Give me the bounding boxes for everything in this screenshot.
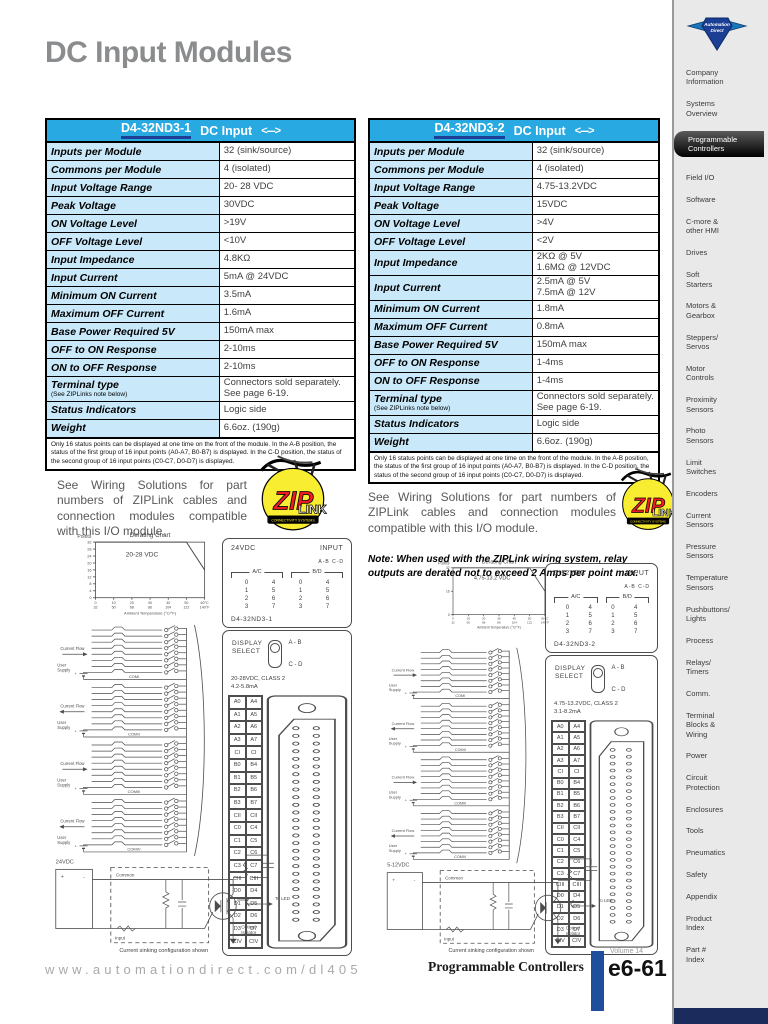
svg-text:4.75-13.2 VDC: 4.75-13.2 VDC <box>474 576 511 582</box>
sidebar-item[interactable]: Enclosures <box>686 805 764 814</box>
terminal-cell: B6 <box>246 784 263 797</box>
svg-text:60°C: 60°C <box>201 601 209 605</box>
terminal-cell: D7 <box>569 924 586 935</box>
svg-text:50: 50 <box>467 621 471 625</box>
terminal-cell: C7 <box>246 860 263 873</box>
spec-row: ON Voltage Level>4V <box>369 215 659 233</box>
footer-section-label: Programmable Controllers <box>428 959 584 975</box>
svg-text:Ambient Temperature (°C/°F): Ambient Temperature (°C/°F) <box>477 626 521 630</box>
ab-cd-label: A-B C-D <box>624 584 650 590</box>
sidebar-item[interactable]: Circuit Protection <box>686 773 764 792</box>
sidebar-item[interactable]: Product Index <box>686 914 764 933</box>
terminal-cell: C0 <box>552 834 569 845</box>
terminal-cell: A0 <box>229 696 246 709</box>
spec-table-d4-32nd3-1: D4-32ND3-1 DC Input <---> Inputs per Mod… <box>45 118 356 471</box>
input-wiring-schematic: COMICurrent FlowUserSupply+COMIICurrent … <box>53 622 225 860</box>
terminal-cell: B5 <box>246 772 263 785</box>
svg-text:32: 32 <box>446 566 450 570</box>
svg-text:32: 32 <box>451 621 455 625</box>
ab-cd-label: A-B C-D <box>318 559 344 565</box>
spec-row: Status IndicatorsLogic side <box>369 415 659 433</box>
terminal-cell: C0 <box>229 822 246 835</box>
logo-banner-text: CONNECTIVITY SYSTEMS <box>630 520 666 524</box>
sidebar-nav: Company InformationSystems OverviewProgr… <box>674 68 768 964</box>
module-face-d4-32nd3-1: 24VDC INPUT A-B C-D A/C B/D 040415152626… <box>222 538 352 956</box>
display-select-toggle[interactable] <box>268 640 282 668</box>
terminal-cell: D2 <box>552 913 569 924</box>
terminal-cell: A5 <box>246 709 263 722</box>
part-number-link[interactable]: D4-32ND3-2 <box>434 122 504 138</box>
terminal-label-grid: A0A4A1A5A2A6A3A7CICIB0B4B1B5B2B6B3B7CIIC… <box>228 695 263 949</box>
svg-text:24: 24 <box>87 554 92 558</box>
spec-row: Input Voltage Range20- 28 VDC <box>46 179 355 197</box>
svg-text:COMI: COMI <box>455 694 465 698</box>
svg-text:122: 122 <box>527 621 532 625</box>
svg-text:68: 68 <box>130 605 134 609</box>
svg-text:Current Flow: Current Flow <box>60 704 85 709</box>
sidebar-item[interactable]: Systems Overview <box>686 99 764 118</box>
terminal-cell: A3 <box>229 734 246 747</box>
module-top-section: 5-12VDC INPUT A-B C-D A/C B/D 0404151526… <box>545 563 658 653</box>
position-cd-label: C - D <box>611 687 625 693</box>
spec-row: Terminal type(See ZIPLinks note below)Co… <box>46 377 355 402</box>
terminal-cell: CIII <box>246 872 263 885</box>
svg-text:Current Flow: Current Flow <box>392 775 415 780</box>
svg-text:Points: Points <box>438 560 450 565</box>
terminal-cell: C4 <box>569 834 586 845</box>
connector-socket <box>266 695 348 949</box>
sidebar-bottom-bar <box>674 1008 768 1024</box>
svg-text:4: 4 <box>89 589 92 593</box>
terminal-cell: A7 <box>569 755 586 766</box>
sidebar-item[interactable]: Motor Controls <box>686 364 764 383</box>
svg-text:COMIII: COMIII <box>128 789 141 794</box>
spec-row: ON to OFF Response2-10ms <box>46 359 355 377</box>
svg-text:20-28 VDC: 20-28 VDC <box>126 551 159 558</box>
sidebar-item[interactable]: Proximity Sensors <box>686 395 764 414</box>
terminal-cell: C3 <box>229 860 246 873</box>
terminal-cell: CII <box>229 809 246 822</box>
svg-text:0: 0 <box>94 601 96 605</box>
sidebar-item[interactable]: Motors & Gearbox <box>686 301 764 320</box>
svg-text:+: + <box>74 843 77 848</box>
svg-text:Supply: Supply <box>57 667 71 672</box>
footer-volume-label: Volume 14 <box>610 948 643 955</box>
spec-row: Peak Voltage15VDC <box>369 197 659 215</box>
terminal-cell: CI <box>246 746 263 759</box>
svg-text:+: + <box>74 786 77 791</box>
svg-text:Supply: Supply <box>57 840 71 845</box>
terminal-cell: B3 <box>229 797 246 810</box>
terminal-cell: C3 <box>552 868 569 879</box>
terminal-cell: CI <box>229 746 246 759</box>
part-number-link[interactable]: D4-32ND3-1 <box>121 122 191 138</box>
spec-row: Base Power Required 5V150mA max <box>46 323 355 341</box>
module-part-number: D4-32ND3-1 <box>231 616 273 623</box>
svg-text:+: + <box>74 671 77 676</box>
sidebar-item[interactable]: Encoders <box>686 489 764 498</box>
terminal-cell: C7 <box>569 868 586 879</box>
group-bracket: B/D <box>606 597 650 603</box>
terminal-cell: C1 <box>229 835 246 848</box>
spec-row: Commons per Module4 (isolated) <box>369 161 659 179</box>
terminal-cell: C1 <box>552 845 569 856</box>
terminal-cell: C2 <box>552 857 569 868</box>
terminal-cell: D6 <box>246 910 263 923</box>
terminal-cell: D1 <box>229 898 246 911</box>
sidebar-item[interactable]: Power <box>686 751 764 760</box>
module-class-label: 20-28VDC, CLASS 2 <box>231 676 285 682</box>
svg-text:50: 50 <box>112 605 116 609</box>
terminal-cell: A3 <box>552 755 569 766</box>
terminal-cell: B7 <box>246 797 263 810</box>
svg-text:Current Flow: Current Flow <box>60 819 85 824</box>
spec-row: Commons per Module4 (isolated) <box>46 161 355 179</box>
terminal-cell: CIII <box>569 879 586 890</box>
terminal-cell: B2 <box>229 784 246 797</box>
sidebar-item[interactable]: Process <box>686 636 764 645</box>
terminal-cell: CII <box>246 809 263 822</box>
terminal-cell: C4 <box>246 822 263 835</box>
spec-row: Peak Voltage30VDC <box>46 197 355 215</box>
terminal-cell: C6 <box>569 857 586 868</box>
terminal-cell: A7 <box>246 734 263 747</box>
position-ab-label: A - B <box>288 640 302 646</box>
terminal-cell: CI <box>569 766 586 777</box>
module-voltage-label: 5-12VDC <box>554 570 586 577</box>
catalog-sidebar: Automation Direct Company InformationSys… <box>672 0 768 1024</box>
terminal-cell: B7 <box>569 811 586 822</box>
spec-row: OFF to ON Response1-4ms <box>369 354 659 372</box>
terminal-cell: B0 <box>229 759 246 772</box>
svg-text:+: + <box>61 875 64 881</box>
terminal-cell: A2 <box>229 721 246 734</box>
spec-row: Terminal type(See ZIPLinks note below)Co… <box>369 390 659 415</box>
ziplink-paragraph: See Wiring Solutions for part numbers of… <box>368 490 616 536</box>
footer-accent-bar <box>591 951 604 1011</box>
module-input-label: INPUT <box>320 545 343 552</box>
terminal-cell: CII <box>569 823 586 834</box>
terminal-cell: CIII <box>229 872 246 885</box>
svg-text:8: 8 <box>89 582 91 586</box>
terminal-cell: CIV <box>246 935 263 948</box>
spec-row: Minimum ON Current3.5mA <box>46 287 355 305</box>
terminal-cell: A2 <box>552 744 569 755</box>
svg-text:Supply: Supply <box>389 794 401 799</box>
svg-text:COMII: COMII <box>455 748 466 752</box>
spec-row: OFF Voltage Level<10V <box>46 233 355 251</box>
sidebar-item[interactable]: Drives <box>686 248 764 257</box>
toggle-knob <box>270 643 280 653</box>
svg-text:Derating Chart: Derating Chart <box>130 532 171 539</box>
sidebar-item[interactable]: C-more & other HMI <box>686 217 764 236</box>
sidebar-item[interactable]: Field I/O <box>686 173 764 182</box>
svg-text:Input: Input <box>444 936 455 941</box>
terminal-cell: C5 <box>569 845 586 856</box>
terminal-cell: B4 <box>569 778 586 789</box>
svg-text:Common: Common <box>445 875 463 880</box>
svg-text:Current Flow: Current Flow <box>60 646 85 651</box>
sidebar-item[interactable]: Tools <box>686 826 764 835</box>
terminal-cell: D5 <box>246 898 263 911</box>
spec-row: Input Impedance4.8KΩ <box>46 251 355 269</box>
spec-row: Input Impedance2KΩ @ 5V1.6MΩ @ 12VDC <box>369 251 659 276</box>
svg-text:24VDC: 24VDC <box>56 859 74 865</box>
spec-row: Status IndicatorsLogic side <box>46 401 355 419</box>
sidebar-item[interactable]: Safety <box>686 870 764 879</box>
svg-text:Supply: Supply <box>57 782 71 787</box>
sidebar-item[interactable]: Company Information <box>686 68 764 87</box>
svg-text:Derating Chart: Derating Chart <box>482 560 517 566</box>
sidebar-item[interactable]: Temperature Sensors <box>686 573 764 592</box>
svg-text:Input: Input <box>115 936 126 941</box>
terminal-cell: A1 <box>552 732 569 743</box>
svg-text:Points: Points <box>77 534 92 540</box>
spec-row: Maximum OFF Current1.6mA <box>46 305 355 323</box>
terminal-cell: D2 <box>229 910 246 923</box>
page-title: DC Input Modules <box>45 36 292 70</box>
terminal-cell: C2 <box>229 847 246 860</box>
svg-text:Common: Common <box>116 873 135 878</box>
sidebar-item[interactable]: Pushbuttons/ Lights <box>686 605 764 624</box>
svg-text:5-12VDC: 5-12VDC <box>387 863 409 869</box>
svg-text:+: + <box>392 878 395 883</box>
spec-row: Inputs per Module32 (sink/source) <box>46 142 355 161</box>
module-body-section: DISPLAY SELECT A - B C - D 4.75-13.2VDC,… <box>545 655 658 955</box>
svg-text:86: 86 <box>148 605 152 609</box>
spec-rows-table: Inputs per Module32 (sink/source)Commons… <box>45 141 356 439</box>
spec-row: Weight6.6oz. (190g) <box>369 433 659 452</box>
terminal-cell: D4 <box>246 885 263 898</box>
display-select-label: DISPLAY SELECT <box>232 640 262 668</box>
svg-text:0: 0 <box>448 613 450 617</box>
svg-text:10: 10 <box>112 601 116 605</box>
terminal-cell: CII <box>552 823 569 834</box>
table-type-label: DC Input <box>514 124 566 138</box>
terminal-cell: D1 <box>552 902 569 913</box>
spec-row: Input Current2.5mA @ 5V7.5mA @ 12V <box>369 275 659 300</box>
svg-text:0: 0 <box>89 596 91 600</box>
terminal-label-grid: A0A4A1A5A2A6A3A7CICIB0B4B1B5B2B6B3B7CIIC… <box>551 720 586 948</box>
terminal-cell: B3 <box>552 811 569 822</box>
terminal-cell: D3 <box>552 924 569 935</box>
svg-text:+: + <box>405 691 407 695</box>
svg-text:Direct: Direct <box>710 28 723 33</box>
connector-socket <box>589 720 654 948</box>
sidebar-item[interactable]: Soft Starters <box>686 270 764 289</box>
table-type-label: DC Input <box>200 124 252 138</box>
sidebar-item[interactable]: Steppers/ Servos <box>686 333 764 352</box>
terminal-cell: CIV <box>552 936 569 947</box>
terminal-cell: B4 <box>246 759 263 772</box>
terminal-cell: B1 <box>229 772 246 785</box>
svg-text:122: 122 <box>183 605 189 609</box>
terminal-cell: D7 <box>246 923 263 936</box>
terminal-cell: B5 <box>569 789 586 800</box>
terminal-cell: CIII <box>552 879 569 890</box>
sidebar-item[interactable]: Relays/ Timers <box>686 658 764 677</box>
spec-row: ON to OFF Response1-4ms <box>369 372 659 390</box>
module-part-number: D4-32ND3-2 <box>554 641 596 648</box>
sidebar-item[interactable]: Pressure Sensors <box>686 542 764 561</box>
terminal-cell: D3 <box>229 923 246 936</box>
terminal-cell: D0 <box>229 885 246 898</box>
sidebar-item[interactable]: Programmable Controllers <box>674 131 764 158</box>
svg-text:+: + <box>405 745 407 749</box>
svg-text:40: 40 <box>166 601 170 605</box>
svg-text:50: 50 <box>184 601 188 605</box>
svg-text:COMIII: COMIII <box>454 801 466 805</box>
terminal-cell: D5 <box>569 902 586 913</box>
svg-text:Current Flow: Current Flow <box>392 828 415 833</box>
display-select-toggle[interactable] <box>591 665 605 693</box>
point-number-grid: 0404151526263737 <box>556 605 647 635</box>
module-class-label: 4.75-13.2VDC, CLASS 2 <box>554 701 618 707</box>
terminal-cell: A0 <box>552 721 569 732</box>
svg-text:32: 32 <box>87 541 91 545</box>
terminal-cell: B1 <box>552 789 569 800</box>
svg-text:16: 16 <box>446 589 450 593</box>
terminal-cell: CIV <box>229 935 246 948</box>
link-logo-text: LINK <box>298 502 327 516</box>
spec-table-header: D4-32ND3-1 DC Input <---> <box>45 118 356 141</box>
sidebar-item[interactable]: Software <box>686 195 764 204</box>
svg-text:Ambient Temperature (°C/°F): Ambient Temperature (°C/°F) <box>124 610 177 615</box>
svg-text:16: 16 <box>87 568 91 572</box>
svg-text:Current Flow: Current Flow <box>60 761 85 766</box>
position-ab-label: A - B <box>611 665 625 671</box>
footer-url-link[interactable]: www.automationdirect.com/dl405 <box>45 962 362 977</box>
toggle-knob <box>593 668 603 678</box>
position-cd-label: C - D <box>288 662 302 668</box>
svg-text:Current Flow: Current Flow <box>392 721 415 726</box>
spec-row: OFF to ON Response2-10ms <box>46 341 355 359</box>
display-select-label: DISPLAY SELECT <box>555 665 585 693</box>
catalog-page: DC Input Modules D4-32ND3-1 DC Input <--… <box>0 0 768 1024</box>
module-face-d4-32nd3-2: 5-12VDC INPUT A-B C-D A/C B/D 0404151526… <box>545 563 658 955</box>
sidebar-item[interactable]: Appendix <box>686 892 764 901</box>
spec-row: Minimum ON Current1.8mA <box>369 300 659 318</box>
sidebar-item[interactable]: Pneumatics <box>686 848 764 857</box>
spec-row: Maximum OFF Current0.8mA <box>369 318 659 336</box>
spec-row: Input Current5mA @ 24VDC <box>46 269 355 287</box>
svg-text:68: 68 <box>482 621 486 625</box>
svg-text:Current sinking configuration: Current sinking configuration shown <box>119 948 208 954</box>
spec-row: Inputs per Module32 (sink/source) <box>369 142 659 161</box>
svg-text:30: 30 <box>148 601 152 605</box>
footer-page-number: e6-61 <box>608 955 667 982</box>
terminal-cell: D0 <box>552 891 569 902</box>
derating-chart: Derating ChartPoints32160032105020683086… <box>436 551 550 645</box>
spec-table-d4-32nd3-2: D4-32ND3-2 DC Input <---> Inputs per Mod… <box>368 118 660 484</box>
terminal-cell: CIV <box>569 936 586 947</box>
spec-row: Weight6.6oz. (190g) <box>46 419 355 438</box>
svg-text:86: 86 <box>497 621 501 625</box>
spec-table-header: D4-32ND3-2 DC Input <---> <box>368 118 660 141</box>
svg-text:Supply: Supply <box>389 687 401 692</box>
module-body-section: DISPLAY SELECT A - B C - D 20-28VDC, CLA… <box>222 630 352 956</box>
terminal-cell: A5 <box>569 732 586 743</box>
terminal-cell: B0 <box>552 778 569 789</box>
terminal-cell: B6 <box>569 800 586 811</box>
terminal-cell: A4 <box>246 696 263 709</box>
logo-banner-text: CONNECTIVITY SYSTEMS <box>271 519 315 523</box>
automationdirect-logo: Automation Direct <box>686 12 748 54</box>
sidebar-item[interactable]: Comm. <box>686 689 764 698</box>
svg-text:COMII: COMII <box>128 731 140 736</box>
sidebar-item[interactable]: Photo Sensors <box>686 426 764 445</box>
svg-text:32: 32 <box>93 605 97 609</box>
svg-text:Supply: Supply <box>57 725 71 730</box>
terminal-cell: A1 <box>229 709 246 722</box>
sidebar-item[interactable]: Terminal Blocks & Wiring <box>686 711 764 739</box>
spec-row: Base Power Required 5V150mA max <box>369 336 659 354</box>
header-arrows-icon: <---> <box>261 125 280 137</box>
sidebar-item[interactable]: Limit Switches <box>686 458 764 477</box>
terminal-cell: D4 <box>569 891 586 902</box>
svg-text:COMI: COMI <box>129 674 139 679</box>
svg-text:28: 28 <box>87 547 91 551</box>
module-top-section: 24VDC INPUT A-B C-D A/C B/D 040415152626… <box>222 538 352 628</box>
svg-text:+: + <box>405 799 407 803</box>
group-bracket: B/D <box>291 572 343 578</box>
sidebar-item[interactable]: Current Sensors <box>686 511 764 530</box>
module-current-label: 3.1-8.2mA <box>554 709 581 715</box>
terminal-cell: CI <box>552 766 569 777</box>
terminal-cell: A6 <box>246 721 263 734</box>
spec-row: OFF Voltage Level<2V <box>369 233 659 251</box>
svg-text:-: - <box>83 875 85 881</box>
group-bracket: A/C <box>231 572 283 578</box>
terminal-cell: C6 <box>246 847 263 860</box>
header-arrows-icon: <---> <box>575 125 594 137</box>
module-input-label: INPUT <box>626 570 649 577</box>
derating-chart: Derating ChartPoints32282420161284003210… <box>75 529 211 627</box>
point-number-grid: 0404151526263737 <box>233 580 341 610</box>
module-voltage-label: 24VDC <box>231 545 256 552</box>
terminal-cell: A6 <box>569 744 586 755</box>
module-current-label: 4.2-5.8mA <box>231 684 258 690</box>
spec-row: ON Voltage Level>19V <box>46 215 355 233</box>
ziplink-logo: ZIP LINK CONNECTIVITY SYSTEMS <box>246 450 340 536</box>
svg-text:-: - <box>414 878 416 883</box>
group-bracket: A/C <box>554 597 598 603</box>
sidebar-item[interactable]: Part # Index <box>686 945 764 964</box>
terminal-cell: A4 <box>569 721 586 732</box>
terminal-cell: D6 <box>569 913 586 924</box>
svg-text:140°F: 140°F <box>200 605 210 609</box>
svg-text:12: 12 <box>87 575 91 579</box>
spec-rows-table: Inputs per Module32 (sink/source)Commons… <box>368 141 660 453</box>
svg-text:Supply: Supply <box>389 741 401 746</box>
svg-text:Current Flow: Current Flow <box>392 667 415 672</box>
svg-text:104: 104 <box>165 605 171 609</box>
svg-text:Automation: Automation <box>703 22 730 27</box>
spec-row: Input Voltage Range4.75-13.2VDC <box>369 179 659 197</box>
svg-text:+: + <box>74 728 77 733</box>
terminal-cell: C5 <box>246 835 263 848</box>
svg-text:20: 20 <box>87 561 91 565</box>
terminal-cell: B2 <box>552 800 569 811</box>
svg-text:20: 20 <box>130 601 134 605</box>
svg-text:104: 104 <box>512 621 517 625</box>
input-wiring-schematic: COMICurrent FlowUserSupply+COMIICurrent … <box>385 645 545 867</box>
svg-text:Current sinking configuration: Current sinking configuration shown <box>448 948 533 954</box>
